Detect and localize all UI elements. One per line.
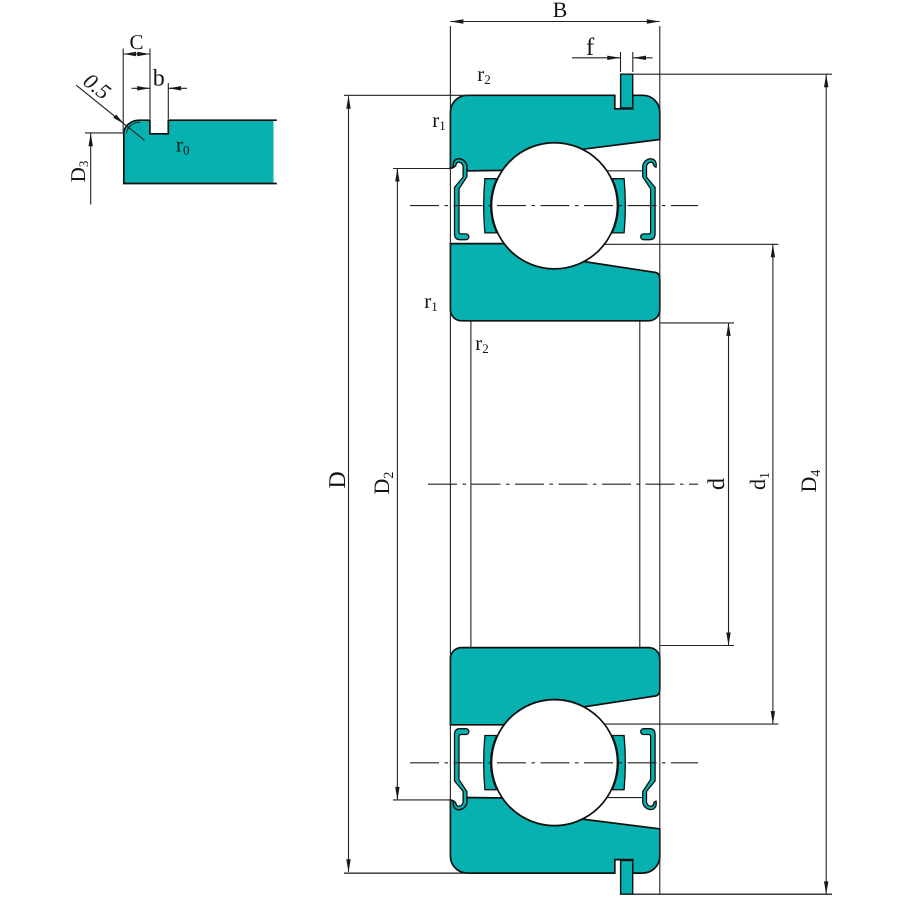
svg-text:C: C <box>129 30 143 54</box>
svg-text:B: B <box>553 0 568 22</box>
svg-text:D: D <box>325 471 351 488</box>
svg-text:f: f <box>586 34 595 61</box>
svg-text:b: b <box>153 66 165 92</box>
svg-text:d: d <box>704 478 730 490</box>
